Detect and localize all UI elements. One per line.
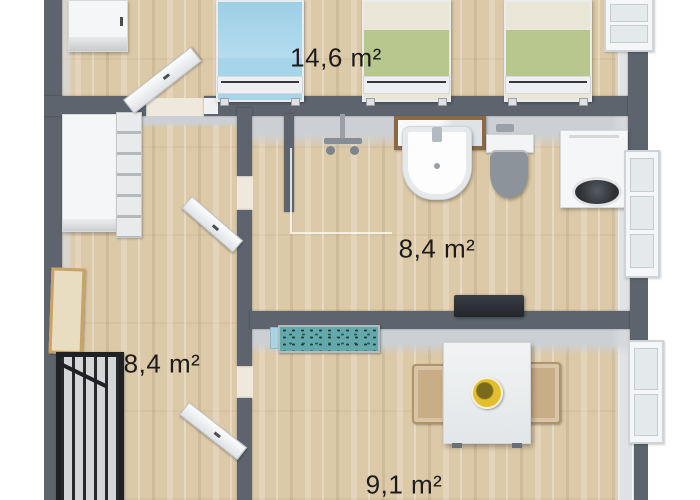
outside-left xyxy=(0,0,44,500)
fruit-bowl xyxy=(471,377,503,409)
washer-drum xyxy=(572,177,622,207)
picture-frame xyxy=(49,267,86,354)
threshold-dining xyxy=(237,366,253,398)
basin-faucet xyxy=(432,127,442,142)
washing-machine xyxy=(560,130,628,208)
baby-crib xyxy=(56,352,124,500)
outside-top-right xyxy=(650,0,700,46)
room-label-dining-room: 9,1 m² xyxy=(366,470,443,500)
window-dining xyxy=(628,340,664,444)
toilet-bowl xyxy=(490,150,528,198)
aquarium xyxy=(278,325,380,353)
floorplan: 14,6 m² 8,4 m² 8,4 m² 9,1 m² xyxy=(0,0,700,500)
toilet xyxy=(486,134,532,200)
shower-glass xyxy=(290,148,392,234)
shower-faucet xyxy=(322,112,366,160)
wardrobe-top-left xyxy=(68,0,128,52)
room-label-top-bedroom: 14,6 m² xyxy=(290,43,382,74)
wall-tv xyxy=(454,295,524,317)
crib-brace xyxy=(57,361,107,388)
wardrobe-left xyxy=(62,114,118,232)
closet-shelf xyxy=(116,112,142,238)
table-leg xyxy=(512,443,522,448)
window-bathroom xyxy=(624,150,660,278)
room-label-left-bedroom: 8,4 m² xyxy=(124,349,201,380)
single-bed-green-2 xyxy=(504,0,592,102)
right-wall-segment-2 xyxy=(630,270,650,344)
window-top-right xyxy=(604,0,654,52)
right-wall-segment-1 xyxy=(628,44,648,154)
basin-drain xyxy=(434,163,440,169)
flush-plate xyxy=(496,124,514,132)
table-leg xyxy=(452,443,462,448)
washbasin xyxy=(402,126,472,200)
divider-wall-segment-2 xyxy=(237,210,252,366)
divider-wall-segment-1 xyxy=(237,108,252,176)
wardrobe-handle xyxy=(120,17,123,26)
threshold-bathroom xyxy=(237,176,253,210)
room-label-bathroom: 8,4 m² xyxy=(399,234,476,265)
threshold-top-bedroom xyxy=(146,98,204,116)
